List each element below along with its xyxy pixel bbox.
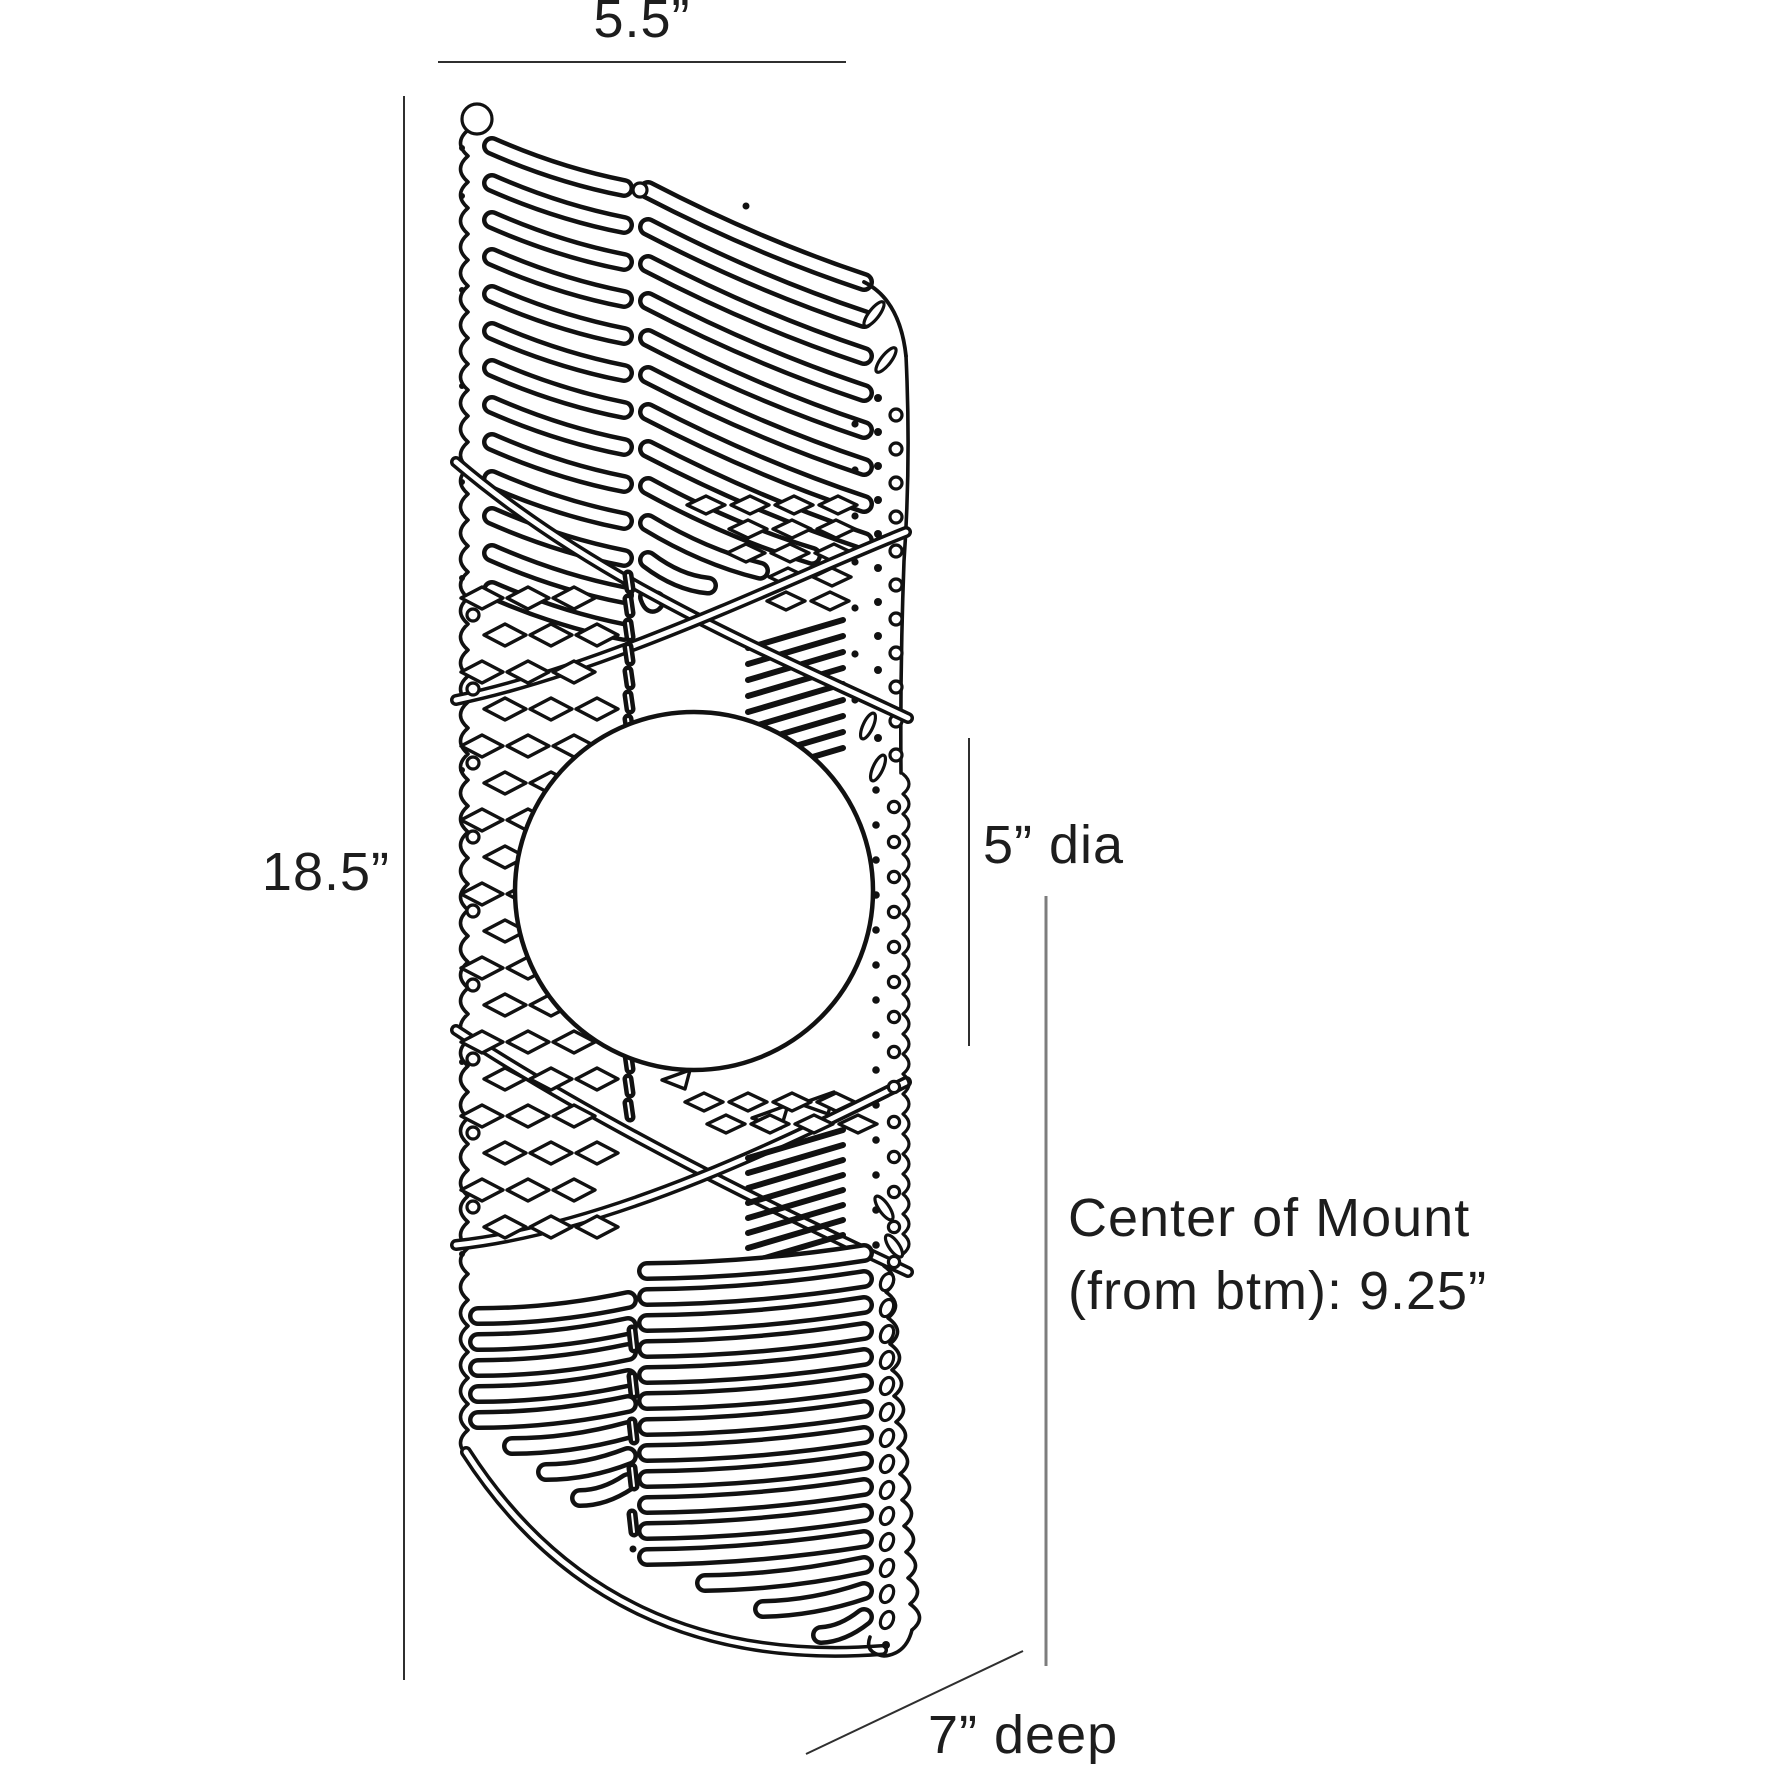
sconce-artwork bbox=[456, 104, 920, 1656]
globe-diameter-label: 5” dia bbox=[983, 816, 1124, 874]
mount-center-label-line1: Center of Mount bbox=[1068, 1182, 1487, 1255]
mount-center-label: Center of Mount (from btm): 9.25” bbox=[1068, 1182, 1487, 1328]
sconce-dimension-diagram: 5.5” 18.5” 5” dia Center of Mount (from … bbox=[0, 0, 1768, 1768]
mount-center-label-line2: (from btm): 9.25” bbox=[1068, 1255, 1487, 1328]
height-dimension-label: 18.5” bbox=[150, 843, 390, 901]
width-dimension-label: 5.5” bbox=[438, 0, 846, 48]
depth-dimension-label: 7” deep bbox=[928, 1706, 1118, 1764]
